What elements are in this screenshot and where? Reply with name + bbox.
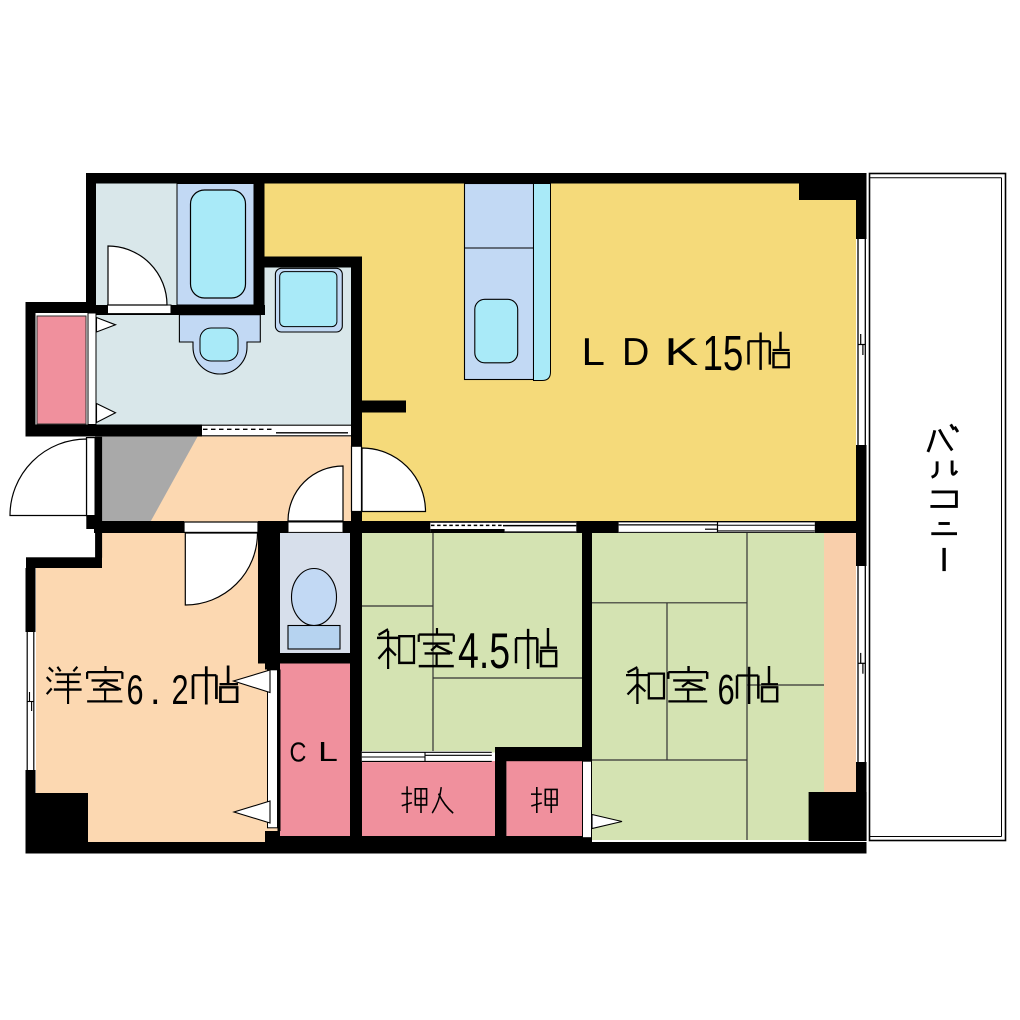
- svg-text:2: 2: [172, 666, 189, 713]
- svg-text:6: 6: [127, 666, 144, 713]
- svg-text:.: .: [150, 667, 161, 713]
- svg-text:K: K: [665, 330, 699, 374]
- svg-text:6: 6: [718, 665, 735, 713]
- svg-text:D: D: [622, 330, 649, 374]
- svg-text:4.5: 4.5: [458, 624, 510, 679]
- svg-text:L: L: [582, 329, 605, 373]
- svg-text:15: 15: [703, 327, 744, 381]
- svg-text:C: C: [290, 738, 307, 768]
- svg-text:L: L: [318, 736, 338, 767]
